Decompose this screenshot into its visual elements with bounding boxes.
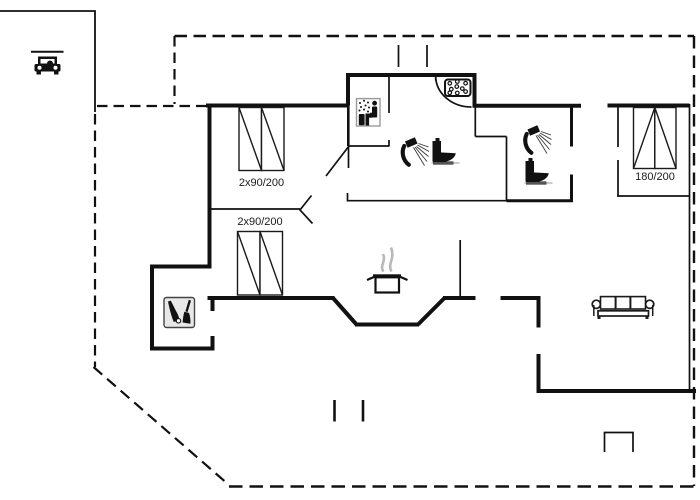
svg-text:180/200: 180/200	[635, 171, 675, 183]
svg-text:2x90/200: 2x90/200	[237, 216, 282, 228]
svg-text:2x90/200: 2x90/200	[239, 177, 284, 189]
